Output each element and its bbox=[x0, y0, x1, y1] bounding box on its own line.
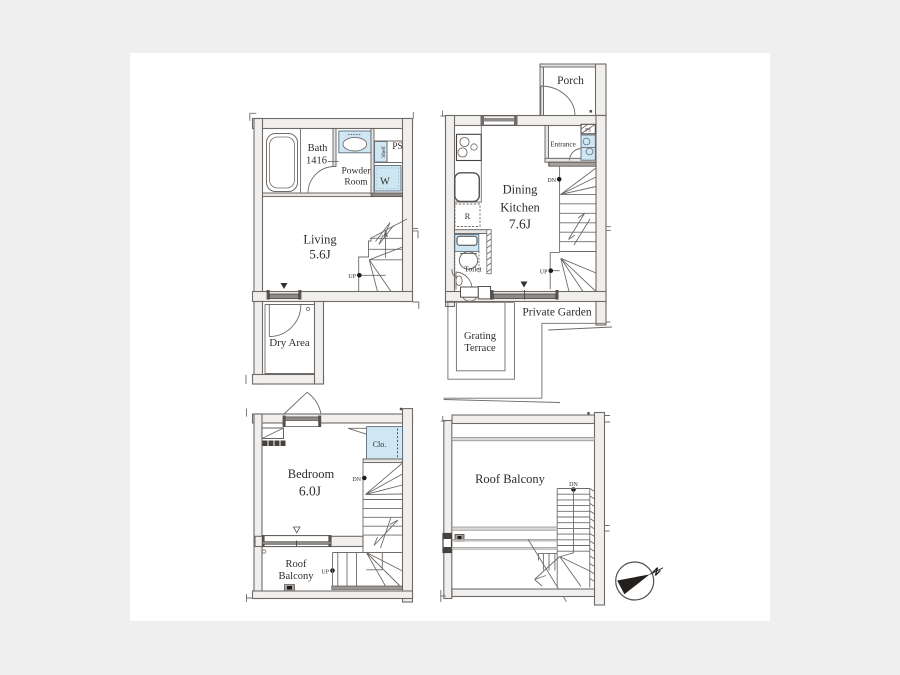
svg-text:Balcony: Balcony bbox=[279, 571, 315, 582]
svg-text:Private Garden: Private Garden bbox=[522, 307, 592, 319]
svg-text:DN: DN bbox=[569, 482, 578, 488]
svg-text:UP: UP bbox=[540, 270, 548, 276]
svg-text:Shelf: Shelf bbox=[380, 146, 387, 158]
svg-text:Entrance: Entrance bbox=[550, 141, 576, 149]
svg-text:Clo.: Clo. bbox=[373, 440, 387, 449]
svg-text:W: W bbox=[380, 177, 390, 188]
svg-text:Grating: Grating bbox=[464, 331, 497, 342]
svg-text:5.6J: 5.6J bbox=[309, 247, 330, 262]
svg-text:Kitchen: Kitchen bbox=[500, 201, 540, 215]
svg-text:Bath: Bath bbox=[308, 143, 329, 154]
svg-text:Roof: Roof bbox=[286, 559, 308, 570]
svg-text:R: R bbox=[465, 211, 471, 221]
svg-text:Powder: Powder bbox=[341, 167, 371, 177]
svg-text:Toilet: Toilet bbox=[464, 265, 482, 274]
svg-text:Room: Room bbox=[344, 178, 368, 188]
svg-text:PS: PS bbox=[585, 128, 591, 134]
svg-text:DN: DN bbox=[547, 178, 556, 184]
svg-text:Terrace: Terrace bbox=[464, 343, 496, 354]
svg-text:DN: DN bbox=[352, 477, 361, 483]
svg-text:Dining: Dining bbox=[503, 183, 538, 197]
svg-text:Bedroom: Bedroom bbox=[288, 467, 335, 481]
svg-text:Dry Area: Dry Area bbox=[269, 337, 310, 349]
svg-text:Roof Balcony: Roof Balcony bbox=[475, 472, 546, 486]
svg-text:6.0J: 6.0J bbox=[299, 484, 321, 499]
svg-text:UP: UP bbox=[348, 274, 356, 280]
svg-text:UP: UP bbox=[321, 569, 329, 575]
svg-text:Porch: Porch bbox=[557, 75, 584, 87]
svg-text:Living: Living bbox=[303, 233, 337, 247]
svg-text:1416: 1416 bbox=[306, 156, 327, 167]
svg-text:7.6J: 7.6J bbox=[509, 217, 531, 232]
svg-text:PS: PS bbox=[392, 142, 403, 152]
